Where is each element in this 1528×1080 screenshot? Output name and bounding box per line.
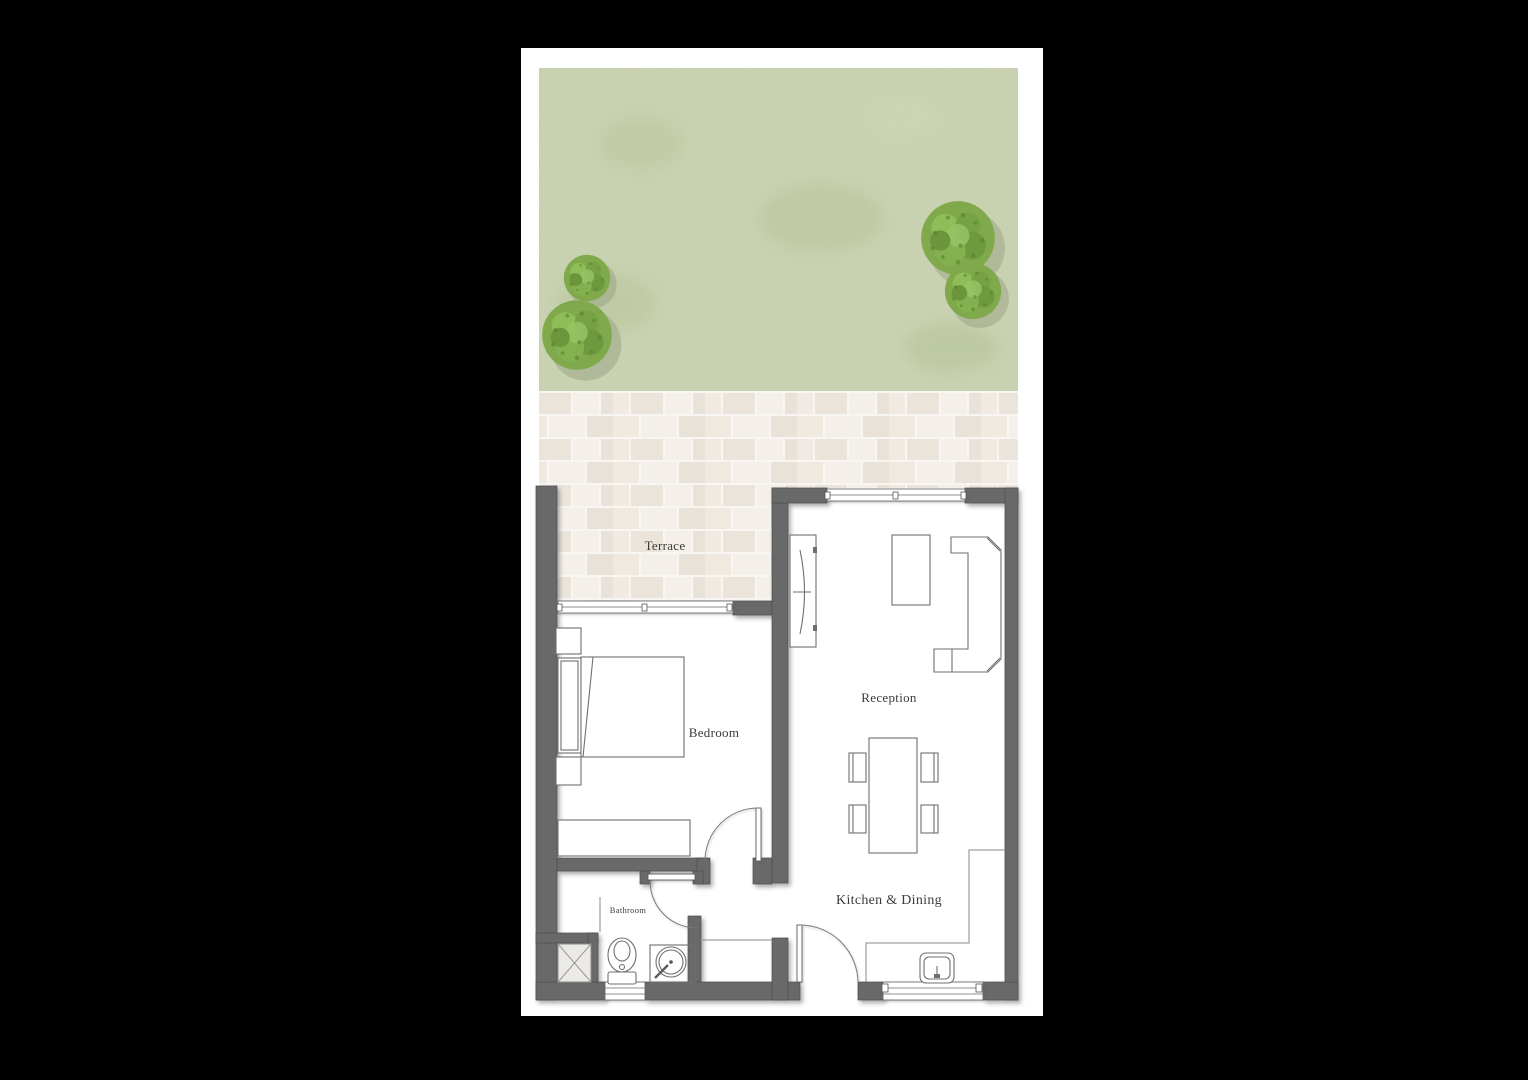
entrance-door bbox=[797, 925, 858, 983]
toilet bbox=[608, 938, 636, 984]
floorplan-drawing: Terrace Bedroom Reception Kitchen & Dini… bbox=[521, 48, 1043, 1016]
wall-hall-stub bbox=[772, 938, 788, 1000]
terrace-window bbox=[557, 601, 733, 613]
bed-group bbox=[556, 628, 684, 785]
wall-right bbox=[1005, 488, 1018, 1000]
wall-bedroom-bottom bbox=[557, 858, 706, 871]
nightstand bbox=[556, 628, 581, 654]
tv-unit bbox=[790, 535, 816, 647]
tv-unit-handle bbox=[813, 547, 817, 553]
dining-chair bbox=[921, 753, 938, 782]
wall-reception-top-left bbox=[772, 488, 827, 503]
floorplan-canvas: Terrace Bedroom Reception Kitchen & Dini… bbox=[0, 0, 1528, 1080]
bedroom-label: Bedroom bbox=[689, 725, 739, 740]
dining-chair bbox=[849, 805, 866, 833]
dining-table bbox=[869, 738, 917, 853]
wall-divider bbox=[772, 488, 788, 883]
sofa-l-shaped bbox=[934, 537, 1001, 672]
kitchen-window bbox=[882, 982, 983, 1000]
wardrobe-dresser bbox=[558, 820, 690, 856]
bed-mattress bbox=[581, 657, 684, 757]
kitchen bbox=[700, 850, 1005, 983]
garden-lawn bbox=[539, 68, 1018, 391]
kitchen-sink bbox=[920, 953, 954, 983]
bathroom-window bbox=[605, 982, 645, 1000]
reception-label: Reception bbox=[861, 690, 917, 705]
bedroom-door bbox=[705, 808, 761, 861]
coffee-table bbox=[892, 535, 930, 605]
wall-bottom-left bbox=[536, 982, 605, 1000]
wall-left bbox=[536, 486, 557, 1000]
wall-jamb bbox=[753, 858, 772, 884]
wall-terrace-window-stub bbox=[733, 601, 772, 615]
tv-unit-group bbox=[790, 535, 817, 647]
floorplan-paper: Terrace Bedroom Reception Kitchen & Dini… bbox=[521, 48, 1043, 1016]
bathroom-label: Bathroom bbox=[610, 905, 646, 915]
dining-set bbox=[849, 738, 938, 853]
kitchen-dining-label: Kitchen & Dining bbox=[836, 893, 942, 908]
reception-window bbox=[825, 489, 966, 501]
dining-chair bbox=[849, 753, 866, 782]
wall-bottom-kitchen bbox=[858, 982, 883, 1000]
dining-chair bbox=[921, 805, 938, 833]
shower bbox=[558, 944, 591, 982]
tv-unit-handle bbox=[813, 625, 817, 631]
wall-bottom-corner bbox=[983, 982, 1018, 1000]
terrace-label: Terrace bbox=[645, 538, 686, 553]
nightstand bbox=[556, 757, 581, 785]
